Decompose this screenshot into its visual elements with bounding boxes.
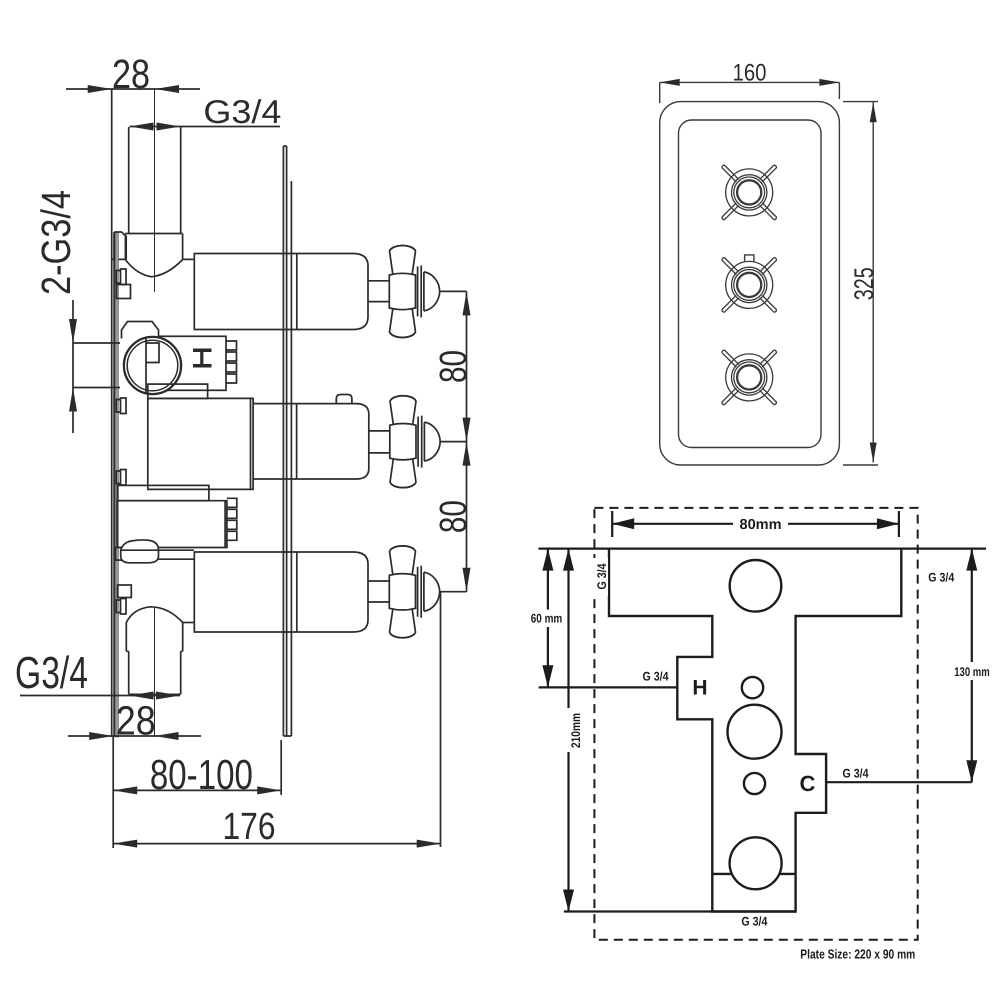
svg-text:G3/4: G3/4 [203,93,281,130]
svg-text:60 mm: 60 mm [531,612,563,626]
svg-text:G 3/4: G 3/4 [843,767,869,781]
svg-text:80: 80 [433,500,475,533]
svg-text:130 mm: 130 mm [954,665,990,679]
svg-text:210mm: 210mm [569,713,583,748]
svg-text:176: 176 [223,806,276,848]
svg-text:80mm: 80mm [740,517,782,533]
svg-text:2-G3/4: 2-G3/4 [33,190,79,295]
svg-text:325: 325 [849,267,879,300]
svg-text:G 3/4: G 3/4 [928,571,954,585]
svg-text:G 3/4: G 3/4 [741,915,767,929]
svg-text:C: C [799,771,815,796]
svg-text:G 3/4: G 3/4 [595,563,609,589]
svg-text:H: H [692,677,707,700]
svg-text:G3/4: G3/4 [15,647,88,698]
svg-text:G 3/4: G 3/4 [643,670,669,684]
svg-text:28: 28 [112,51,150,97]
svg-text:80: 80 [433,350,475,383]
svg-text:Plate Size: 220 x 90 mm: Plate Size: 220 x 90 mm [800,947,915,962]
